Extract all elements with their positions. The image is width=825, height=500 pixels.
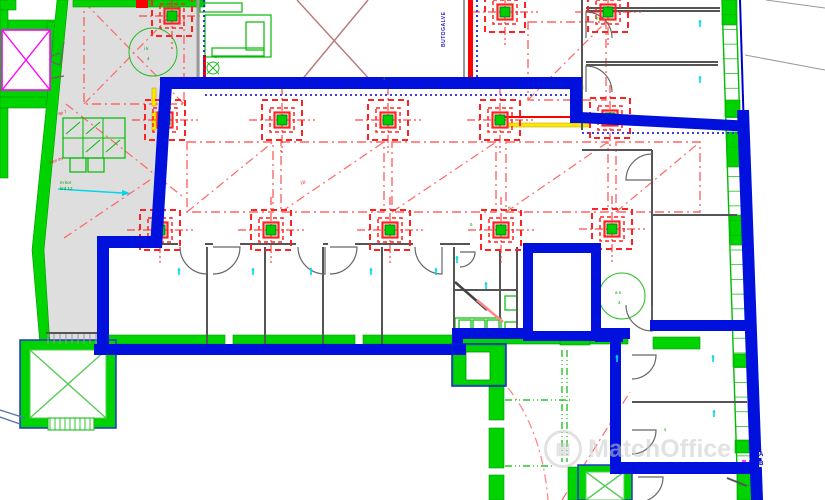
tiny-label: 5 [470, 222, 473, 227]
tiny-label: s [664, 427, 666, 432]
grid-label-b: B [759, 461, 763, 467]
grid-label-a: A [759, 452, 763, 458]
tiny-label: e [508, 205, 511, 210]
zone-boundary [94, 77, 763, 500]
tiny-label: i k [144, 46, 149, 51]
tiny-label: z [215, 54, 217, 59]
tiny-label: krd 12 [60, 186, 73, 191]
tiny-label: a s [615, 290, 621, 295]
vertical-room-label: BUTOGALVE [441, 1, 447, 47]
tiny-label: m [596, 16, 600, 21]
tiny-label: 4 [618, 300, 621, 305]
floorplan-canvas: ▦ MatchOffice BUTOGALVE A B z4m5si k4a s… [0, 0, 825, 500]
tiny-label: 4 [147, 56, 150, 61]
zone-boundary-dotted [204, 0, 750, 330]
roof-void-lines [297, 0, 372, 82]
tiny-label: 4 [383, 76, 386, 81]
elevator-shafts [20, 340, 632, 500]
floorplan-drawing [0, 0, 825, 500]
green-service-lines [505, 350, 570, 466]
tiny-label: m kor [60, 180, 71, 185]
